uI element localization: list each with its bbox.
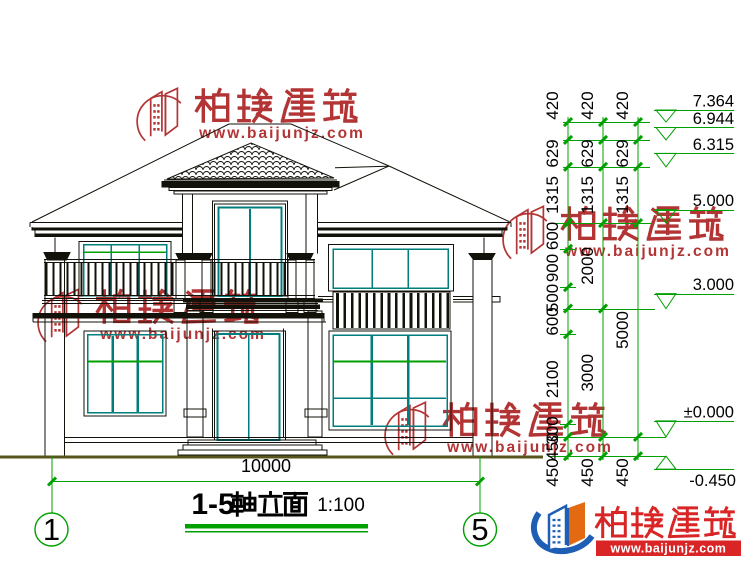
svg-text:2000: 2000 <box>578 247 597 285</box>
svg-text:2100: 2100 <box>543 360 562 398</box>
svg-text:629: 629 <box>578 139 597 167</box>
svg-text:5.000: 5.000 <box>693 192 734 210</box>
svg-text:1315: 1315 <box>543 176 562 214</box>
svg-text:450: 450 <box>543 458 562 486</box>
svg-text:420: 420 <box>578 91 597 119</box>
svg-text:900: 900 <box>543 254 562 282</box>
svg-text:7.364: 7.364 <box>693 93 734 111</box>
svg-text:450: 450 <box>578 458 597 486</box>
svg-text:www.baijunjz.com: www.baijunjz.com <box>610 542 727 556</box>
svg-text:1315: 1315 <box>578 176 597 214</box>
svg-text:10000: 10000 <box>241 456 291 476</box>
svg-text:600: 600 <box>543 222 562 250</box>
svg-text:6.944: 6.944 <box>693 110 734 128</box>
svg-text:1-5: 1-5 <box>191 488 234 521</box>
svg-text:www.baijunjz.com: www.baijunjz.com <box>198 125 365 142</box>
svg-text:5000: 5000 <box>613 311 632 349</box>
svg-text:3.000: 3.000 <box>693 276 734 294</box>
svg-text:450: 450 <box>613 458 632 486</box>
svg-text:629: 629 <box>613 139 632 167</box>
svg-text:-0.450: -0.450 <box>689 472 736 490</box>
svg-text:1315: 1315 <box>613 176 632 214</box>
svg-text:1:100: 1:100 <box>317 495 365 516</box>
svg-text:420: 420 <box>613 91 632 119</box>
svg-text:www.baijunjz.com: www.baijunjz.com <box>446 439 613 456</box>
svg-text:5: 5 <box>471 512 488 547</box>
svg-text:420: 420 <box>543 91 562 119</box>
svg-text:300: 300 <box>543 416 562 444</box>
svg-text:±0.000: ±0.000 <box>684 403 734 421</box>
svg-text:629: 629 <box>543 139 562 167</box>
svg-text:1: 1 <box>43 512 60 547</box>
svg-text:6.315: 6.315 <box>693 136 734 154</box>
svg-text:500: 500 <box>543 284 562 312</box>
svg-text:3000: 3000 <box>578 354 597 392</box>
